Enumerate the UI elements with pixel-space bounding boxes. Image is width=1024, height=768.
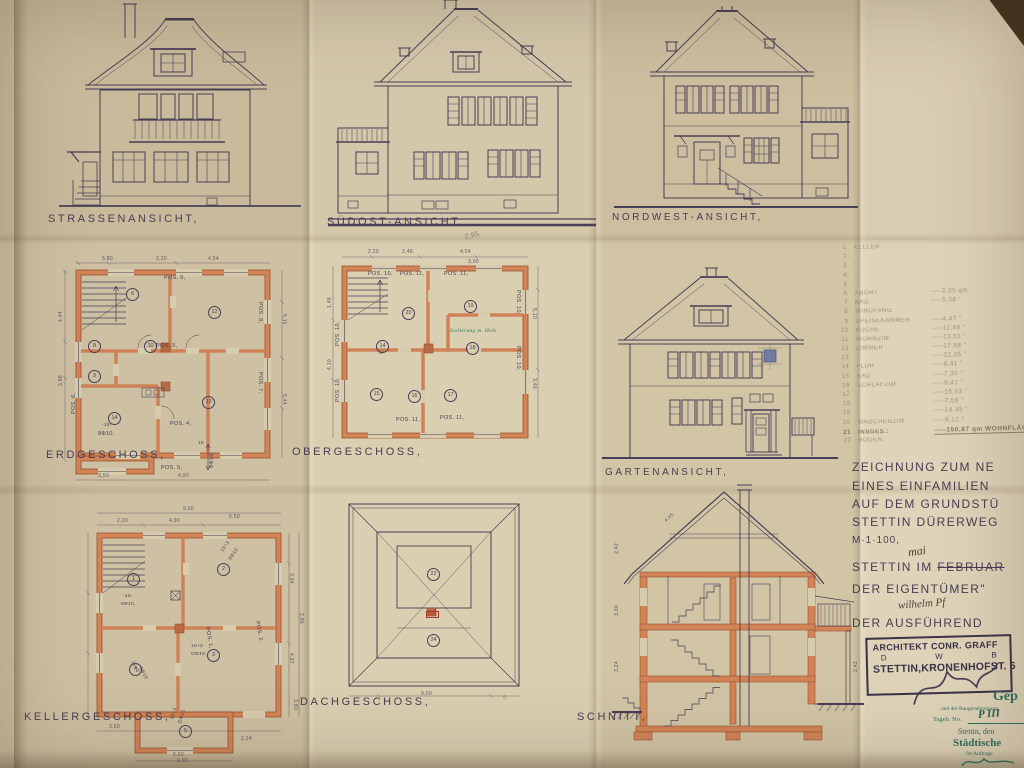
plan-annotation: 9,00 [177,759,188,764]
rl-no: 19 [838,410,851,416]
plan-annotation: 10 [144,340,157,353]
plan-annotation: 2,86 [298,613,303,624]
approval-stamp-handwritten-no: P III [978,707,1001,720]
rl-no: 12 [836,346,849,352]
plan-annotation: 2 [217,563,230,576]
plan-annotation: 8Φ10 [210,453,216,468]
approval-stamp-city: Stettin, den [958,727,994,736]
plan-annotation: ΟΦ10 [191,653,205,658]
rl-no: 13 [836,355,849,361]
plan-annotation: 15 [370,388,383,401]
plan-annotation: POS. 7, [257,372,263,393]
suedost-elevation-drawing [326,0,598,230]
rl-name: ZIMMER [856,344,932,352]
plan-annotation: POS. 10, [515,290,521,315]
plan-annotation: 2,48 [402,250,413,255]
title-line-4: STETTIN DÜRERWEG [852,515,999,529]
approval-stamp-tageb: Tageb. No. [933,716,962,723]
rl-area [931,281,1021,283]
nordwest-elevation-drawing [610,6,862,218]
plan-annotation: 3,00 [468,260,479,265]
strassenansicht-elevation-drawing [55,0,305,215]
label-suedost-ansicht: SÜDOST-ANSICHT, [327,216,465,228]
plan-annotation: 8Φ10, [98,432,115,438]
rl-no: 4 [834,273,847,279]
rl-name: " [857,390,933,398]
rl-name: SCHLAFZIM. [857,381,933,389]
rl-name: " [854,280,930,288]
label-obergeschoss: OBERGESCHOSS, [292,446,422,458]
plan-annotation: 2,95 [464,231,480,241]
plan-annotation: 3,24 [615,661,620,672]
plan-annotation: POS. 11, [440,416,464,422]
rl-area [930,263,1020,265]
label-strassenansicht: STRASSENANSICHT, [48,213,199,225]
plan-annotation: 2,24 [241,737,252,742]
plan-annotation: POS. 11, [400,272,424,278]
plan-annotation: 6 [126,288,139,301]
rl-name: WOHNZIM. [856,335,932,343]
label-erdgeschoss: ERDGESCHOSS, [46,449,166,461]
plan-annotation: 14 [108,412,121,425]
plan-annotation: 2,42 [854,661,859,672]
plan-annotation: 3,94 [288,573,293,584]
plan-annotation: 22 [427,568,440,581]
approval-signature-scribble [958,755,1018,768]
obergeschoss-plan-drawing: POS. 10,POS. 11,POS. 11,POS. 10,POS. 10,… [328,250,545,452]
plan-annotation: 3,80 [292,699,297,710]
rl-area: 8,41 " [932,360,1022,368]
label-kellergeschoss: KELLERGESCHOSS, [24,711,171,723]
plan-annotation: 2,20 [368,250,379,255]
plan-annotation: POS. 10, [336,321,342,346]
approval-stamp-gep: Gep [993,689,1018,705]
plan-annotation: 19 [464,300,477,313]
plan-annotation: 20 [402,307,415,320]
plan-annotation: 2,20 [117,519,128,524]
plan-annotation: 1 [127,573,140,586]
plan-annotation: POS. 9, [164,276,185,282]
title-owner-line: DER EIGENTÜMER" [852,582,986,596]
label-gartenansicht: GARTENANSICHT, [605,467,728,478]
dachgeschoss-plan-drawing: 22245,89,006 [333,488,535,706]
plan-annotation: POS. 11, [444,272,468,278]
plan-annotation: -15- [123,595,133,600]
title-owner-handwritten: wilhelm Pf [898,596,946,611]
plan-annotation: 5,10 [531,308,536,319]
label-nordwest-ansicht: NORDWEST-ANSICHT, [612,212,763,223]
rl-name: BAD [857,372,933,380]
plan-annotation: POS. 10, [515,346,521,371]
plan-annotation: 4,44 [59,311,64,322]
title-month-handwritten: mai [907,543,927,560]
plan-annotation: POS. 11, [396,418,420,424]
rl-no: 3 [834,263,847,269]
plan-annotation: 16 [408,390,421,403]
rl-name: " [856,353,932,361]
title-line-1: ZEICHNUNG ZUM NE [852,460,995,474]
plan-annotation: 2,20 [156,257,167,262]
rl-name: SPEISEKAMMER [855,316,931,324]
plan-annotation: 5,80 [102,257,113,262]
rl-name: KELLER [854,243,930,251]
plan-annotation: 4,54 [460,250,471,255]
plan-annotation: 3,00 [615,605,620,616]
blueprint-sheet: POS. 9,POS. 8,POS. 7,POS. 3,POS. 4,POS. … [0,0,1024,768]
rl-no: 9 [835,318,848,324]
title-executor-line: DER AUSFÜHREND [852,616,983,630]
plan-annotation: 17 [444,389,457,402]
rl-name: " [857,399,933,407]
plan-annotation: 8 [88,340,101,353]
rl-area [931,309,1021,311]
rl-no: 16 [837,383,850,389]
erdgeschoss-plan-drawing: POS. 9,POS. 8,POS. 7,POS. 3,POS. 4,POS. … [58,256,293,481]
plan-annotation: -15- [102,424,112,429]
rl-no: 6 [835,291,848,297]
rl-name: MÄDCHENZIM. [858,417,934,425]
fold-crease [0,233,1024,245]
schnitt-section-drawing: 2,423,003,242,424,45 [612,476,864,752]
title-line-2: EINES EINFAMILIEN [852,479,990,493]
rl-name: ABORT [855,289,931,297]
plan-annotation: POS. 10, [336,377,342,402]
rl-name: " [854,271,930,279]
rl-area: 7,30 " [933,369,1023,377]
rl-no: 14 [836,364,849,370]
rl-name: WINDFANG [855,307,931,315]
plan-annotation: 5,44 [281,394,286,405]
rl-area: 8,12 " [934,415,1024,423]
rl-no: 20 [838,419,851,425]
plan-annotation: 1,48 [328,297,333,308]
kellergeschoss-plan-drawing: 1234515+38Φ10-15-8Φ10,15+38Φ1010+3ΟΦ1010… [83,503,305,765]
rl-name: BODEN. [858,436,934,444]
rl-no: 1 [834,245,847,251]
title-city: STETTIN IM [852,560,933,574]
rl-no: 21 [838,430,851,436]
rl-area [934,438,1024,440]
plan-annotation: 5,11 [281,314,286,325]
plan-annotation: 3,50 [98,474,109,479]
plan-annotation: 3 [207,649,220,662]
plan-annotation: POS. 8, [257,302,263,323]
rl-no: 11 [836,337,849,343]
rl-area: 4,47 " [931,314,1021,322]
paper-left-edge [14,0,28,768]
rl-no: 10 [836,328,849,334]
stamp-col-w: W [935,652,943,661]
plan-annotation: 9,00 [183,507,194,512]
rl-name: INSGES.: [858,428,934,436]
rl-area: 5,08 " [931,296,1021,304]
plan-annotation: 5,50 [229,515,240,520]
rl-area: 7,58 " [933,397,1023,405]
plan-annotation: POS. 3, [156,344,177,350]
rl-area [930,245,1020,247]
plan-annotation: POS. 6, [72,393,78,414]
title-month-struck: FEBRUAR [937,560,1004,574]
plan-annotation: 3,98 [59,375,64,386]
room-list: 1KELLER2"3"4"5"6ABORT2,05 qm7BAD5,08 "8W… [834,241,1024,448]
approval-stamp-underline [968,723,1024,724]
plan-annotation: 4,90 [169,519,180,524]
plan-annotation: 4,54 [208,257,219,262]
plan-annotation: 12 [208,306,221,319]
plan-annotation: Isolierung m. Holz [450,329,497,335]
rl-area: 13,52 " [932,333,1022,341]
rl-area: 22,05 " [932,351,1022,359]
rl-area [930,254,1020,256]
rl-area [930,272,1020,274]
plan-annotation: POS. 10, [368,272,393,278]
plan-annotation: 2,42 [615,543,620,554]
plan-annotation: 3,48 [531,378,536,389]
rl-name: FLUR [856,362,932,370]
plan-annotation: 9 [88,370,101,383]
table-corner [976,0,1024,46]
rl-area: 17,58 " [932,342,1022,350]
plan-annotation: 5 [179,725,192,738]
stamp-col-d: D [881,653,887,662]
plan-annotation: 24 [427,634,440,647]
label-schnitt: SCHNITT, [577,711,647,723]
plan-annotation: 8Φ10, [121,603,136,608]
rl-name: " [854,261,930,269]
rl-no: 15 [837,374,850,380]
rl-area: 14,45 " [934,406,1024,414]
rl-no: 5 [834,282,847,288]
title-date-line: STETTIN IM FEBRUAR [852,560,1005,574]
title-line-3: AUF DEM GRUNDSTÜ [852,497,1000,511]
plan-annotation: 18 [466,342,479,355]
rl-area: 8,41 " [933,379,1023,387]
rl-name: " [858,408,934,416]
rl-name: " [854,252,930,260]
rl-area: 2,05 qm [931,287,1021,295]
rl-area: 11,88 " [932,323,1022,331]
plan-annotation: 5,8 [426,611,439,618]
rl-no: 22 [838,438,851,444]
rl-no: 2 [834,254,847,260]
plan-annotation: 4,97 [288,653,293,664]
plan-annotation: POS. 4, [170,422,191,428]
plan-annotation: 15 [198,442,204,447]
gartenansicht-elevation-drawing [598,266,842,470]
rl-area: 15,03 " [933,388,1023,396]
plan-annotation: 13 [202,396,215,409]
plan-annotation: POS. 5, [161,466,182,472]
rl-name: KÜCHE [856,326,932,334]
plan-annotation: 4,90 [178,474,189,479]
rl-name: BAD [855,298,931,306]
approval-stamp-staedtische: Städtische [953,737,1001,749]
label-dachgeschoss: DACHGESCHOSS, [300,696,430,708]
rl-no: 18 [837,401,850,407]
plan-annotation: 4,10 [328,359,333,370]
plan-annotation: 14 [376,340,389,353]
plan-annotation: 10+3 [191,645,203,650]
rl-no: 7 [835,300,848,306]
rl-no: 17 [837,392,850,398]
plan-annotation: 6 [503,696,506,702]
rl-no: 8 [835,309,848,315]
title-scale: M·1·100, [852,535,900,546]
plan-annotation: 3,50 [109,725,120,730]
